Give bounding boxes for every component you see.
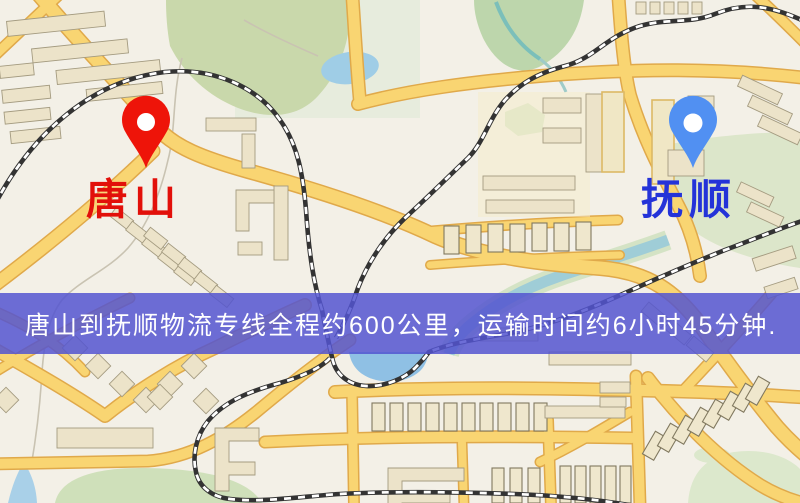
- origin-pin-hole: [137, 113, 155, 131]
- map-canvas[interactable]: 唐山 抚顺 唐山到抚顺物流专线全程约600公里，运输时间约6小时45分钟.: [0, 0, 800, 503]
- route-info-text: 唐山到抚顺物流专线全程约600公里，运输时间约6小时45分钟.: [0, 306, 777, 342]
- barcode-row-center: [444, 222, 591, 254]
- destination-city-label: 抚顺: [641, 179, 737, 223]
- route-info-banner: 唐山到抚顺物流专线全程约600公里，运输时间约6小时45分钟.: [0, 293, 800, 354]
- map-image: [0, 0, 800, 503]
- destination-pin-hole: [684, 114, 703, 133]
- origin-city-label: 唐山: [86, 179, 182, 223]
